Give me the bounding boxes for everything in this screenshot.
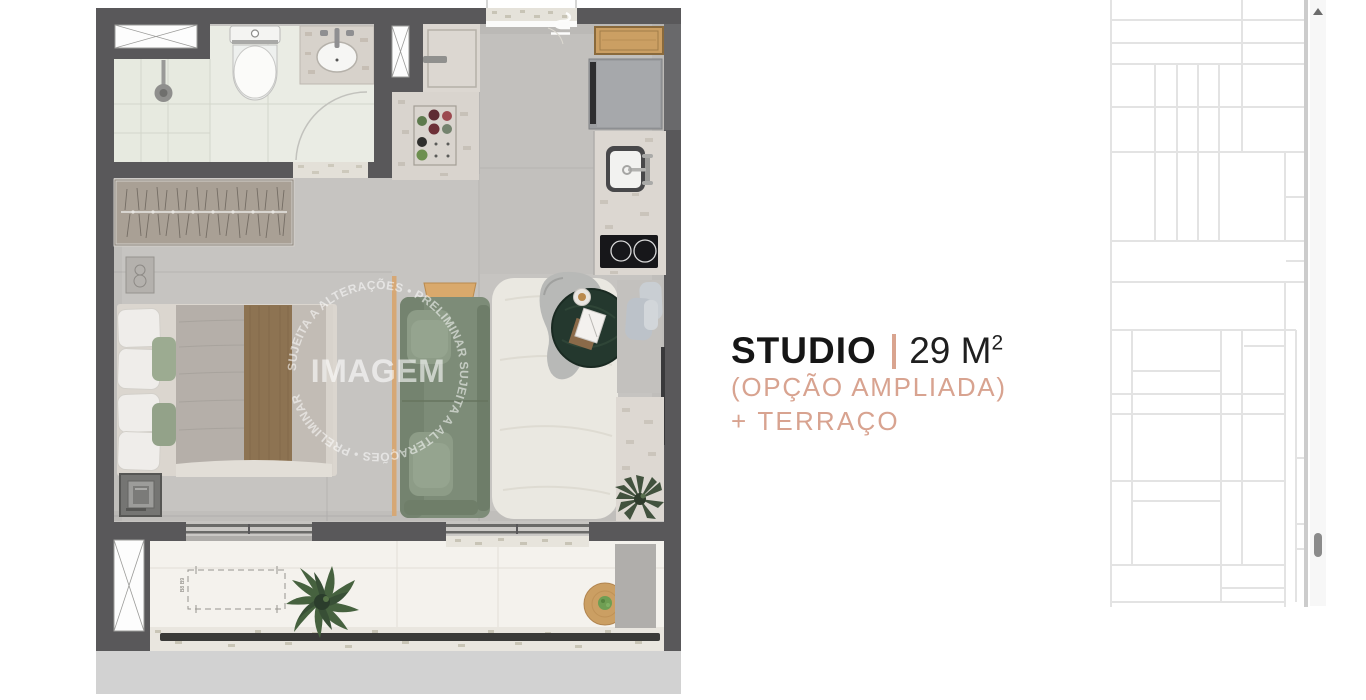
svg-text:IMAGEM: IMAGEM [311,353,446,389]
svg-text:B9: B9 [180,578,186,584]
svg-text:B8: B8 [180,586,186,592]
